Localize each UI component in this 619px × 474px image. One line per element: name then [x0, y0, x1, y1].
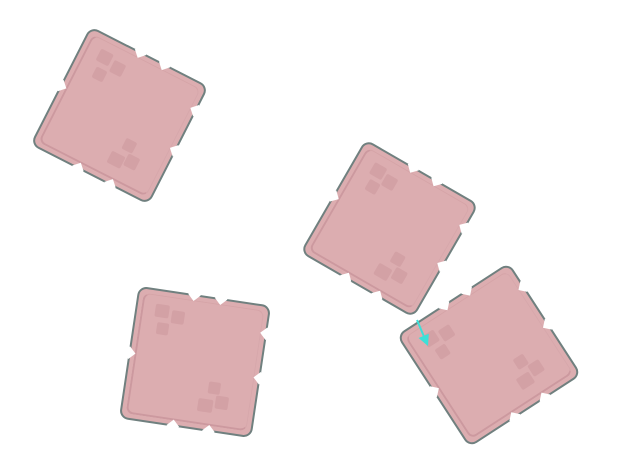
block-top-right[interactable]	[300, 139, 479, 318]
edge-notch	[462, 284, 473, 295]
surface-mark	[207, 381, 221, 395]
surface-mark	[155, 322, 169, 336]
bevel-inset	[405, 270, 574, 439]
edge-notch	[518, 280, 529, 291]
edge-notch	[539, 392, 550, 403]
surface-mark	[95, 48, 113, 66]
edge-notch	[122, 346, 135, 359]
surface-mark	[421, 329, 440, 348]
surface-mark	[527, 358, 545, 376]
surface-mark	[214, 395, 229, 410]
edge-notch	[104, 179, 115, 190]
block-bottom-left[interactable]	[118, 286, 270, 438]
surface-mark	[154, 304, 170, 319]
simulation-canvas	[0, 0, 619, 474]
surface-mark	[91, 66, 107, 82]
edge-notch	[437, 261, 448, 272]
surface-mark	[373, 263, 392, 282]
edge-notch	[340, 273, 351, 284]
edge-notch	[215, 292, 228, 305]
edge-notch	[169, 145, 180, 156]
surface-mark	[390, 266, 408, 284]
edge-notch	[166, 420, 179, 433]
edge-notch	[439, 299, 450, 310]
surface-mark	[196, 398, 213, 413]
edge-notch	[202, 425, 215, 438]
surface-mark	[435, 343, 452, 360]
surface-mark	[368, 162, 387, 180]
surface-mark	[108, 59, 125, 76]
edge-notch	[371, 291, 382, 302]
surface-mark	[170, 310, 185, 325]
edge-notch	[509, 412, 520, 423]
bevel-inset	[308, 147, 471, 310]
edge-notch	[260, 327, 273, 340]
edge-notch	[158, 58, 169, 69]
edge-notch	[55, 79, 66, 90]
block-top-left[interactable]	[30, 26, 209, 205]
edge-notch	[428, 385, 439, 396]
surface-mark	[516, 371, 536, 390]
edge-notch	[190, 105, 201, 116]
surface-mark	[121, 138, 137, 154]
surface-mark	[123, 153, 140, 170]
surface-mark	[389, 251, 405, 267]
edge-notch	[459, 222, 470, 233]
edge-notch	[327, 190, 338, 201]
surface-mark	[105, 150, 124, 168]
edge-notch	[407, 162, 418, 173]
bevel-inset	[38, 34, 201, 197]
edge-notch	[134, 46, 145, 57]
surface-mark	[512, 353, 529, 370]
surface-mark	[363, 179, 379, 195]
surface-mark	[438, 323, 456, 341]
edge-notch	[72, 162, 83, 173]
edge-notch	[543, 318, 554, 329]
bevel-inset	[125, 293, 264, 432]
edge-notch	[188, 288, 201, 301]
edge-notch	[430, 175, 441, 186]
surface-mark	[381, 173, 399, 191]
edge-notch	[253, 372, 266, 385]
